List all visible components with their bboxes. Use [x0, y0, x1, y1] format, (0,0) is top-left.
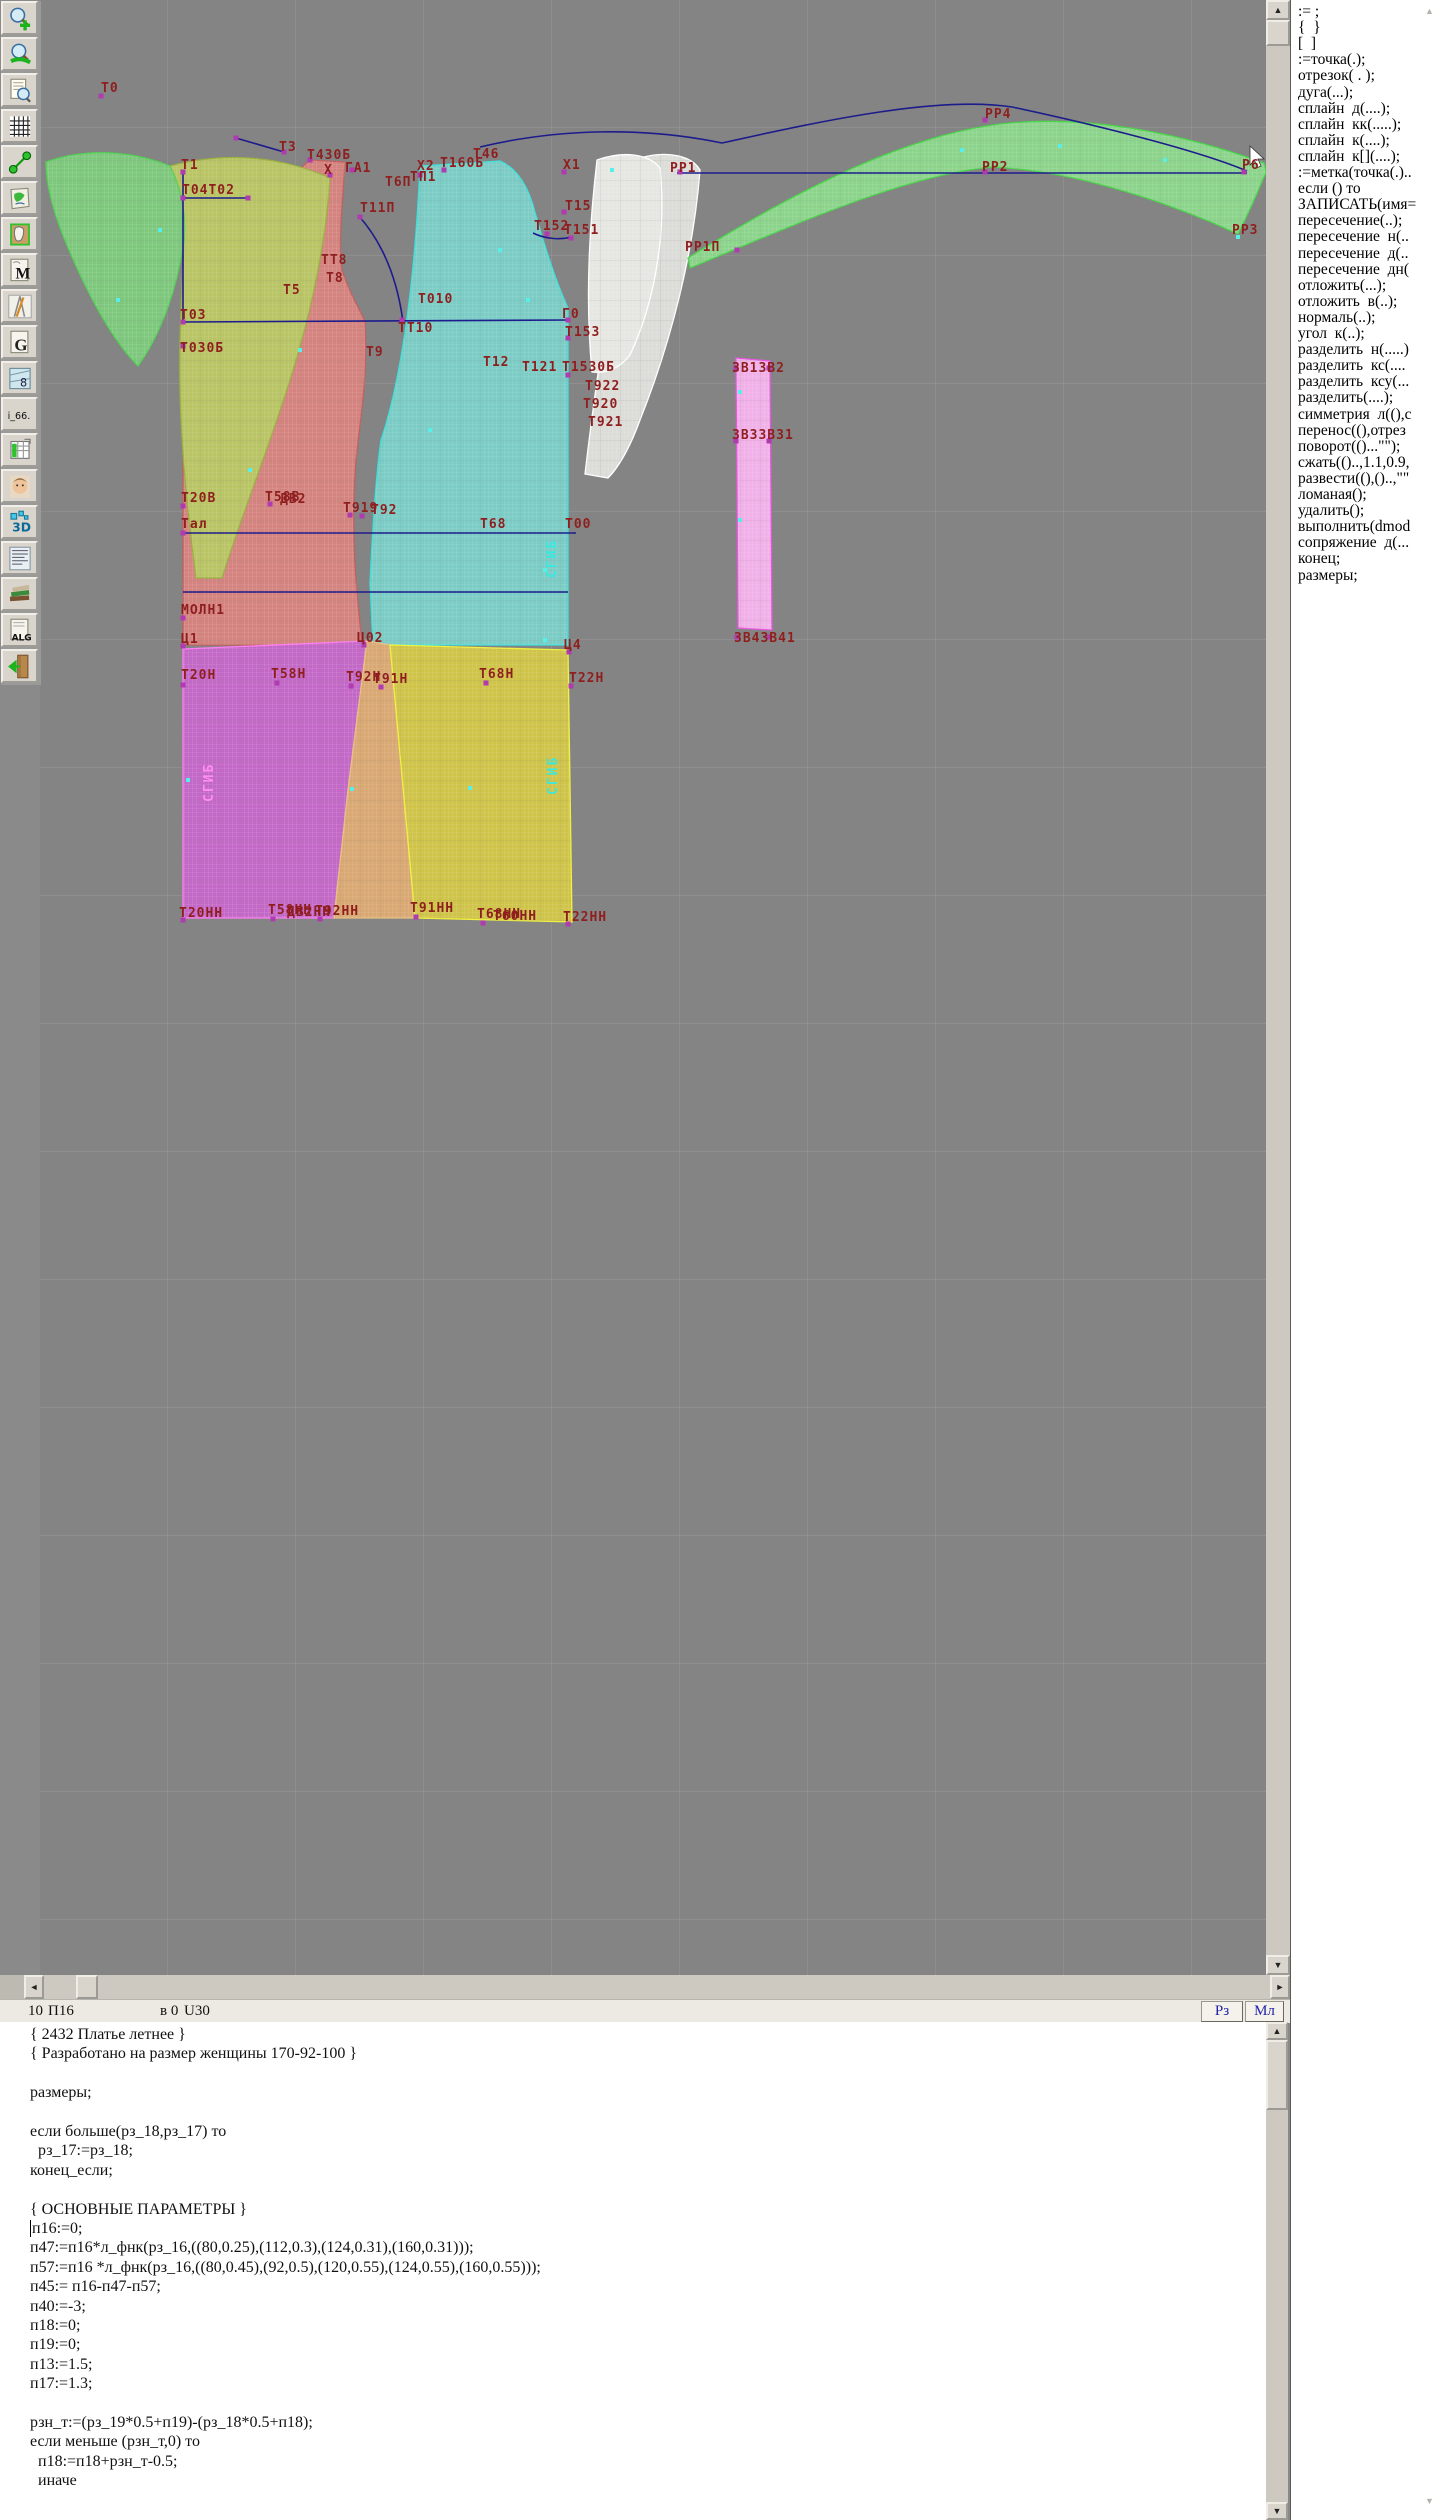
status-point-name: П16: [48, 2003, 74, 2020]
code-line: п17:=1.3;: [30, 2374, 92, 2393]
code-line: конец_если;: [30, 2161, 113, 2180]
code-line: если меньше (рзн_т,0) то: [30, 2432, 200, 2451]
page-preview-button[interactable]: [1, 73, 38, 107]
command-item[interactable]: :=точка(.);: [1298, 52, 1365, 68]
command-item[interactable]: сплайн кк(.....);: [1298, 117, 1401, 133]
code-line: { ОСНОВНЫЕ ПАРАМЕТРЫ }: [30, 2200, 247, 2219]
svg-text:3D: 3D: [12, 520, 31, 534]
command-item[interactable]: разделить ксу(...: [1298, 374, 1409, 390]
code-line: иначе: [30, 2471, 77, 2490]
command-panel: := ;{ }[ ]:=точка(.);отрезок( . );дуга(.…: [1290, 0, 1440, 2520]
panel-scroll-up-icon[interactable]: ▲: [1425, 6, 1434, 16]
portrait-button[interactable]: [1, 469, 38, 503]
command-item[interactable]: отрезок( . );: [1298, 68, 1375, 84]
grid-button[interactable]: [1, 109, 38, 143]
pattern-pieces: [46, 121, 1266, 922]
code-line: п18:=п18+рзн_т-0.5;: [30, 2452, 177, 2471]
drafting-tools-button[interactable]: [1, 289, 38, 323]
status-bar: 10 П16 в 0 U30 Рз Мл: [0, 1999, 1290, 2023]
command-item[interactable]: ЗАПИСАТЬ(имя=: [1298, 197, 1416, 213]
scroll-right-button[interactable]: ►: [1270, 1975, 1290, 1999]
drawing-canvas[interactable]: Т0Т1Т04Т02Т3Т430БХГА1Т6ПТП1Х2Т160БТ46Х1Т…: [0, 0, 1266, 1975]
command-item[interactable]: перенос((),отрез: [1298, 423, 1406, 439]
status-size-code: U30: [184, 2003, 210, 2020]
scroll-down-button[interactable]: ▼: [1266, 1955, 1290, 1975]
doc-icon: [6, 545, 34, 572]
command-item[interactable]: размеры;: [1298, 568, 1358, 584]
svg-text:ALG: ALG: [11, 633, 31, 643]
text-document-button[interactable]: [1, 541, 38, 575]
alg-document-button[interactable]: ALG: [1, 613, 38, 647]
command-item[interactable]: ломаная();: [1298, 487, 1367, 503]
table-icon: [6, 437, 34, 464]
svg-text:8: 8: [20, 376, 27, 389]
scroll-left-button[interactable]: ◄: [24, 1975, 44, 1999]
command-item[interactable]: разделить кс(....: [1298, 358, 1406, 374]
table-chart-button[interactable]: [1, 433, 38, 467]
ruler-icon: 8: [6, 365, 34, 392]
segment-icon: [6, 149, 34, 176]
status-mode: в 0: [160, 2003, 178, 2020]
command-item[interactable]: дуга(...);: [1298, 85, 1353, 101]
command-item[interactable]: пересечение дн(: [1298, 262, 1409, 278]
command-item[interactable]: пересечение(..);: [1298, 213, 1402, 229]
face-icon: [6, 473, 34, 500]
code-line: п18:=0;: [30, 2316, 80, 2335]
txt-icon: i_66.: [6, 401, 34, 428]
exit-button[interactable]: [1, 649, 38, 683]
command-item[interactable]: сплайн к(....);: [1298, 133, 1390, 149]
command-item[interactable]: [ ]: [1298, 36, 1316, 52]
curve-map-button[interactable]: [1, 181, 38, 215]
code-line: п13:=1.5;: [30, 2355, 92, 2374]
command-item[interactable]: угол к(..);: [1298, 326, 1365, 342]
svg-text:i_66.: i_66.: [7, 411, 30, 422]
command-item[interactable]: := ;: [1298, 4, 1319, 20]
panel-scroll-down-icon[interactable]: ▼: [1425, 2496, 1434, 2506]
code-line: п45:= п16-п47-п57;: [30, 2277, 161, 2296]
code-line: п47:=п16*л_фнк(рз_16,((80,0.25),(112,0.3…: [30, 2238, 474, 2257]
alg-icon: ALG: [6, 617, 34, 644]
command-item[interactable]: отложить в(..);: [1298, 294, 1397, 310]
pattern-document-button[interactable]: [1, 217, 38, 251]
code-line: п19:=0;: [30, 2335, 80, 2354]
grid-icon: [6, 113, 34, 140]
rz-button[interactable]: Рз: [1201, 2001, 1243, 2022]
command-item[interactable]: поворот(()..."");: [1298, 439, 1400, 455]
command-item[interactable]: развести((),()..,"": [1298, 471, 1409, 487]
books-button[interactable]: [1, 577, 38, 611]
measurements-button[interactable]: 8: [1, 361, 38, 395]
zoom-out-button[interactable]: [1, 37, 38, 71]
command-item[interactable]: конец;: [1298, 551, 1340, 567]
status-line-number: 10: [28, 2003, 43, 2020]
preview-icon: [6, 77, 34, 104]
map-icon: [6, 185, 34, 212]
i66-button[interactable]: i_66.: [1, 397, 38, 431]
svg-text:G: G: [14, 335, 27, 354]
code-line: п40:=-3;: [30, 2297, 86, 2316]
code-line: { 2432 Платье летнее }: [30, 2025, 186, 2044]
toolbar: MG8i_66.3DALG: [1, 1, 41, 685]
pattern-icon: [6, 221, 34, 248]
command-item[interactable]: симметрия л((),с: [1298, 407, 1412, 423]
code-scroll-down-button[interactable]: ▼: [1266, 2502, 1288, 2520]
command-item[interactable]: пересечение н(..: [1298, 229, 1409, 245]
code-line: размеры;: [30, 2083, 92, 2102]
command-item[interactable]: разделить н(.....): [1298, 342, 1409, 358]
gpage-icon: G: [6, 329, 34, 356]
code-line: рзн_т:=(рз_19*0.5+п19)-(рз_18*0.5+п18);: [30, 2413, 313, 2432]
view-3d-button[interactable]: 3D: [1, 505, 38, 539]
command-item[interactable]: :=метка(точка(.)..: [1298, 165, 1412, 181]
scroll-up-button[interactable]: ▲: [1266, 0, 1290, 20]
code-line: рз_17:=рз_18;: [30, 2141, 133, 2160]
code-scroll-thumb[interactable]: [1266, 2040, 1288, 2110]
command-item[interactable]: пересечение д(..: [1298, 246, 1408, 262]
scroll-corner: [0, 1975, 24, 1999]
code-line: п57:=п16 *л_фнк(рз_16,((80,0.45),(92,0.5…: [30, 2258, 541, 2277]
mpage-icon: M: [6, 257, 34, 284]
zoomout-icon: [6, 41, 34, 68]
exit-icon: [6, 653, 34, 680]
m-document-button[interactable]: M: [1, 253, 38, 287]
code-line: { Разработано на размер женщины 170-92-1…: [30, 2044, 357, 2063]
command-item[interactable]: если () то: [1298, 181, 1361, 197]
command-item[interactable]: сплайн к[](....);: [1298, 149, 1400, 165]
command-item[interactable]: { }: [1298, 20, 1321, 36]
vscroll-thumb[interactable]: [1266, 20, 1290, 46]
g-document-button[interactable]: G: [1, 325, 38, 359]
command-item[interactable]: сжать(()..,1.1,0.9,: [1298, 455, 1410, 471]
segment-tool-button[interactable]: [1, 145, 38, 179]
zoomin-icon: [6, 5, 34, 32]
command-item[interactable]: отложить(...);: [1298, 278, 1386, 294]
command-item[interactable]: нормаль(..);: [1298, 310, 1375, 326]
code-line: если больше(рз_18,рз_17) то: [30, 2122, 226, 2141]
command-item[interactable]: выполнить(dmod: [1298, 519, 1410, 535]
books-icon: [6, 581, 34, 608]
code-line: п16:=0;: [30, 2219, 82, 2238]
code-scroll-up-button[interactable]: ▲: [1266, 2022, 1288, 2040]
command-item[interactable]: сплайн д(....);: [1298, 101, 1390, 117]
canvas-hscrollbar[interactable]: ◄ ►: [24, 1975, 1290, 1999]
hscroll-thumb[interactable]: [76, 1975, 98, 1999]
cube-icon: 3D: [6, 509, 34, 536]
text-caret: [30, 2220, 31, 2237]
code-editor[interactable]: { 2432 Платье летнее }{ Разработано на р…: [0, 2022, 1266, 2520]
command-item[interactable]: сопряжение д(...: [1298, 535, 1409, 551]
pattern-canvas[interactable]: [0, 0, 1266, 1975]
svg-text:M: M: [15, 265, 30, 282]
code-vscrollbar[interactable]: ▲ ▼: [1266, 2022, 1288, 2520]
zoom-in-button[interactable]: [1, 1, 38, 35]
draft-icon: [6, 293, 34, 320]
command-item[interactable]: разделить(....);: [1298, 390, 1393, 406]
ml-button[interactable]: Мл: [1245, 2001, 1284, 2022]
canvas-vscrollbar[interactable]: ▲ ▼: [1266, 0, 1290, 1975]
command-item[interactable]: удалить();: [1298, 503, 1364, 519]
